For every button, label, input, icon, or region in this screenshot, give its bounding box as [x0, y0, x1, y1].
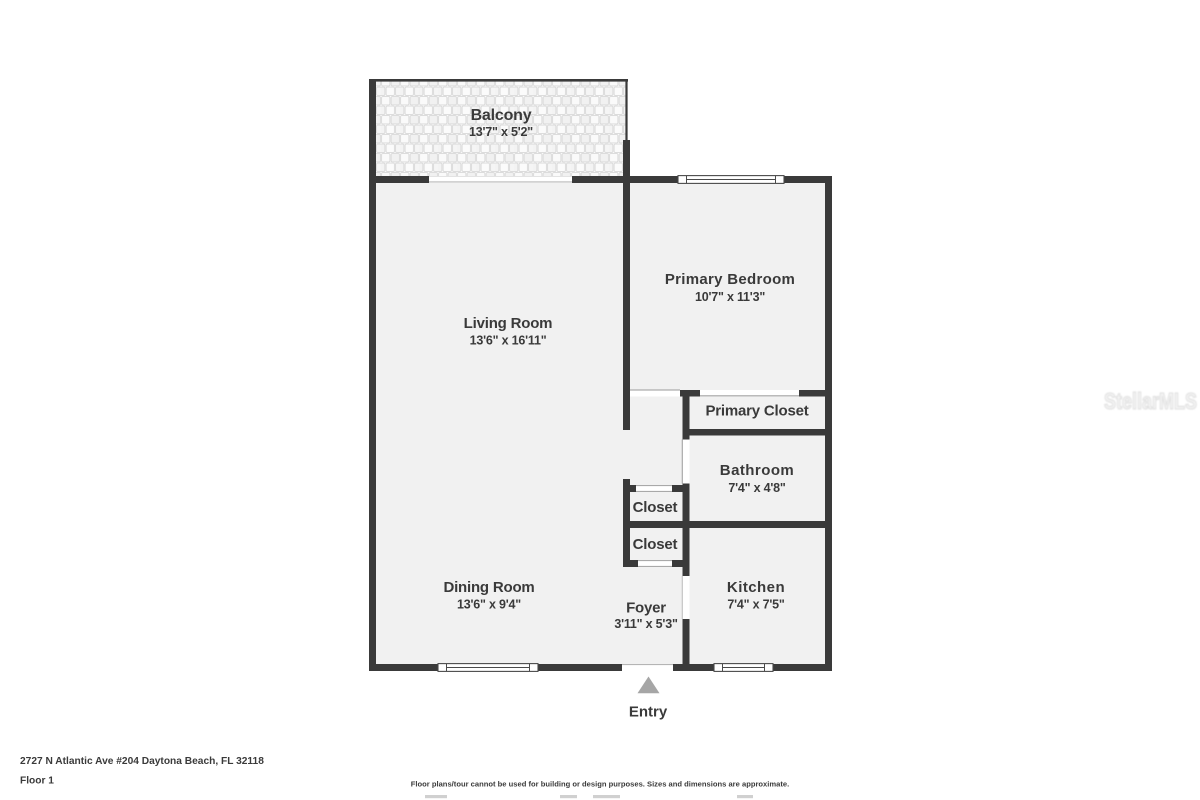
svg-text:Living Room: Living Room: [464, 315, 553, 332]
svg-text:2727 N Atlantic Ave #204 Dayto: 2727 N Atlantic Ave #204 Daytona Beach, …: [20, 756, 264, 767]
svg-text:Primary Closet: Primary Closet: [705, 403, 808, 420]
svg-text:10'7" x 11'3": 10'7" x 11'3": [695, 290, 765, 304]
svg-text:Dining Room: Dining Room: [443, 579, 534, 596]
svg-text:7'4" x 7'5": 7'4" x 7'5": [727, 598, 785, 612]
svg-text:7'4" x 4'8": 7'4" x 4'8": [728, 481, 786, 495]
svg-text:13'7" x 5'2": 13'7" x 5'2": [469, 125, 533, 139]
svg-text:Floor plans/tour cannot be use: Floor plans/tour cannot be used for buil…: [411, 779, 789, 788]
svg-text:StellarMLS: StellarMLS: [1104, 388, 1197, 414]
svg-text:13'6" x 9'4": 13'6" x 9'4": [457, 598, 521, 612]
svg-text:3'11" x 5'3": 3'11" x 5'3": [614, 617, 678, 631]
svg-text:Foyer: Foyer: [626, 600, 666, 617]
svg-text:Primary Bedroom: Primary Bedroom: [665, 271, 795, 288]
svg-text:Bathroom: Bathroom: [720, 462, 794, 479]
svg-text:Kitchen: Kitchen: [727, 579, 785, 596]
svg-text:Entry: Entry: [629, 704, 668, 721]
svg-text:Closet: Closet: [633, 499, 678, 516]
svg-text:Balcony: Balcony: [471, 107, 532, 124]
svg-text:13'6" x 16'11": 13'6" x 16'11": [470, 334, 547, 348]
svg-text:Floor 1: Floor 1: [20, 776, 54, 787]
svg-text:Closet: Closet: [633, 536, 678, 553]
